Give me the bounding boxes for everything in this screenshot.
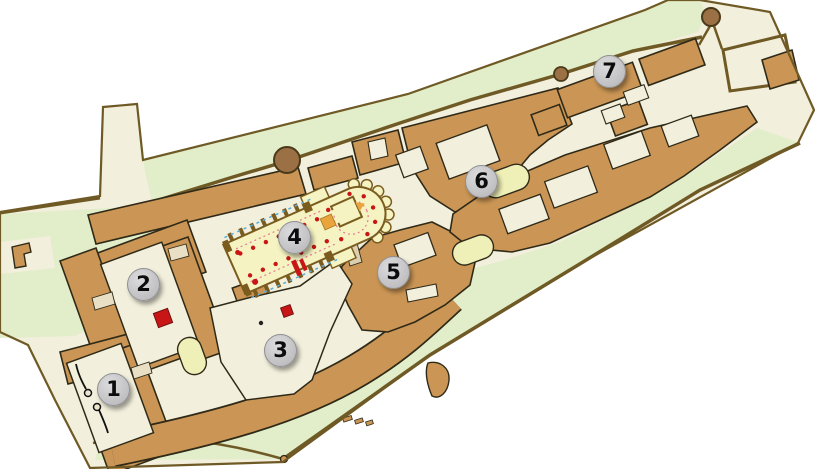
ground-west-patch	[0, 236, 55, 274]
marker-2-label: 2	[136, 274, 151, 295]
bastion-south	[426, 362, 449, 397]
marker-7-label: 7	[602, 61, 617, 82]
footpath-lower-start	[94, 404, 101, 411]
cloister-dot	[259, 321, 263, 325]
marker-4-label: 4	[287, 227, 302, 248]
ruin-dashes	[343, 416, 374, 426]
courtyard-mid-north	[368, 138, 388, 160]
marker-1-label: 1	[106, 379, 121, 400]
site-plan-map: 1 2 3 4 5 6 7	[0, 0, 815, 469]
tree-northeast	[702, 8, 720, 26]
map-marker-2[interactable]: 2	[127, 268, 160, 301]
footpath-upper-end	[85, 390, 92, 397]
map-marker-3[interactable]: 3	[264, 334, 297, 367]
map-marker-5[interactable]: 5	[377, 256, 410, 289]
map-marker-6[interactable]: 6	[465, 165, 498, 198]
tree-large	[274, 147, 300, 173]
map-marker-1[interactable]: 1	[97, 373, 130, 406]
marker-3-label: 3	[273, 340, 288, 361]
tree-small	[554, 67, 568, 81]
marker-6-label: 6	[474, 171, 489, 192]
marker-5-label: 5	[386, 262, 401, 283]
map-marker-7[interactable]: 7	[593, 55, 626, 88]
map-marker-4[interactable]: 4	[278, 221, 311, 254]
